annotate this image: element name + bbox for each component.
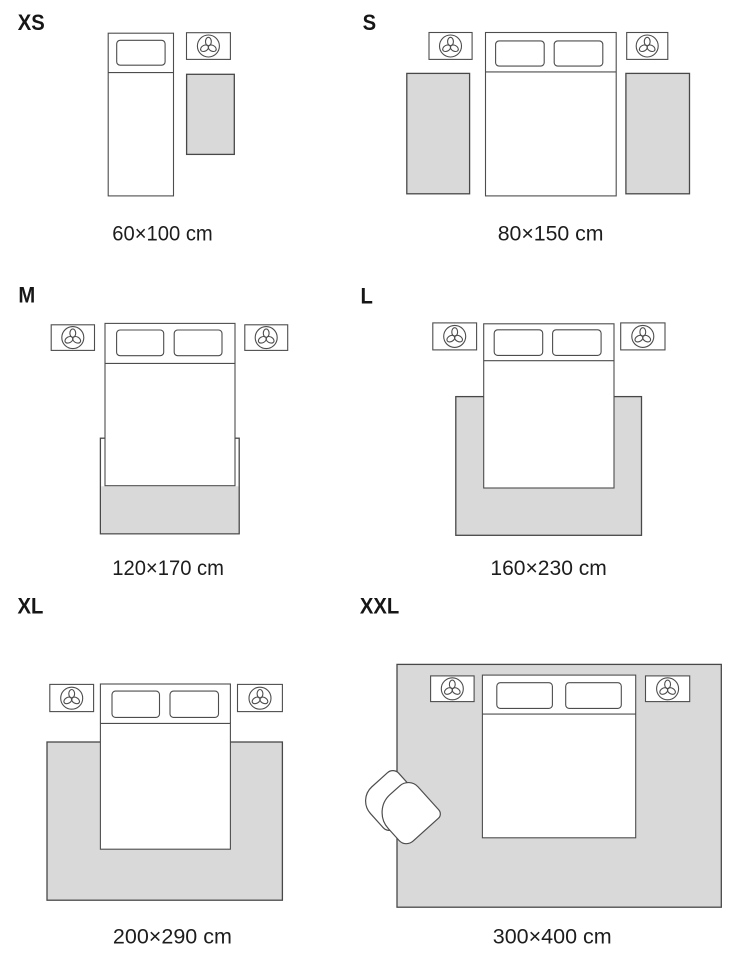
svg-text:200×290 cm: 200×290 cm <box>113 924 232 948</box>
svg-text:80×150 cm: 80×150 cm <box>498 221 604 245</box>
svg-text:XL: XL <box>18 595 44 619</box>
svg-text:160×230 cm: 160×230 cm <box>490 556 606 580</box>
svg-text:120×170 cm: 120×170 cm <box>112 557 224 581</box>
svg-text:M: M <box>18 284 35 308</box>
svg-text:60×100 cm: 60×100 cm <box>112 222 213 246</box>
svg-text:L: L <box>361 285 373 309</box>
svg-text:XS: XS <box>18 11 45 35</box>
svg-text:S: S <box>363 11 376 35</box>
svg-text:300×400 cm: 300×400 cm <box>493 924 612 948</box>
svg-text:XXL: XXL <box>360 595 399 619</box>
